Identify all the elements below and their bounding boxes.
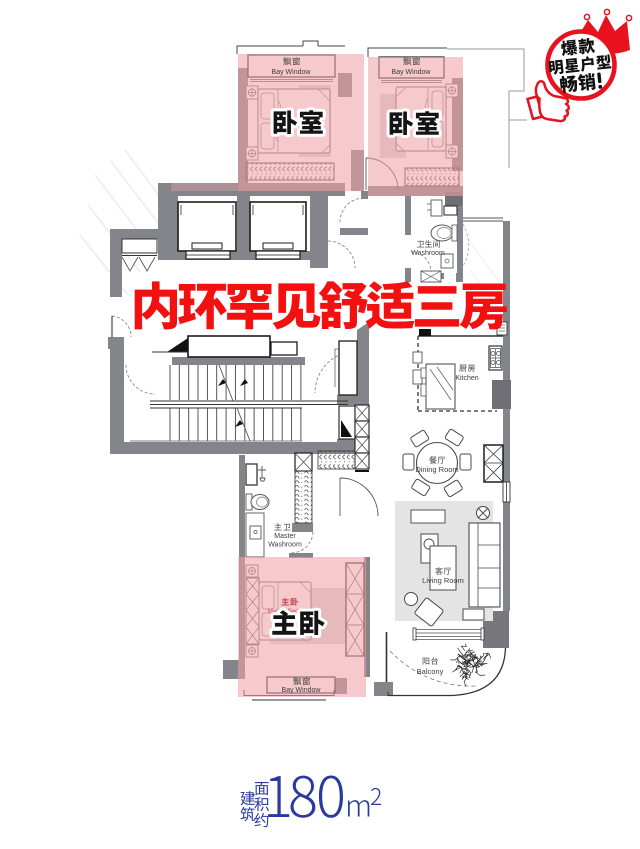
svg-text:Dining Room: Dining Room: [415, 465, 458, 474]
svg-text:Washroom: Washroom: [268, 542, 302, 549]
svg-text:Living Room: Living Room: [422, 576, 464, 585]
svg-text:Bay Window: Bay Window: [272, 69, 312, 76]
svg-text:Bay Window: Bay Window: [282, 687, 322, 694]
svg-text:Kitchen: Kitchen: [455, 375, 478, 382]
svg-text:Bay Window: Bay Window: [392, 69, 432, 76]
svg-text:Master: Master: [274, 533, 296, 540]
svg-text:Balcony: Balcony: [417, 667, 444, 676]
svg-text:Washroom: Washroom: [411, 250, 445, 257]
